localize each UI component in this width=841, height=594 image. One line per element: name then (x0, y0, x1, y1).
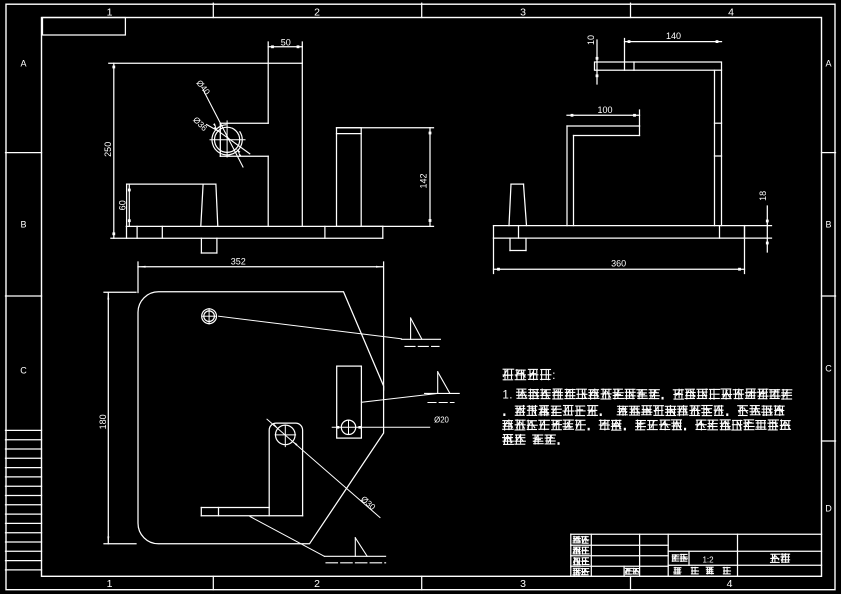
svg-text:2: 2 (314, 7, 320, 19)
svg-text:142: 142 (418, 173, 428, 188)
svg-text:3: 3 (520, 578, 526, 590)
svg-text:Ø20: Ø20 (434, 416, 449, 425)
svg-text:A: A (825, 59, 831, 69)
svg-text:10: 10 (586, 35, 596, 45)
svg-text:1:2: 1:2 (702, 555, 714, 564)
svg-text:180: 180 (98, 414, 108, 429)
svg-text:100: 100 (597, 105, 612, 115)
svg-text:A: A (20, 59, 26, 69)
svg-text:1: 1 (502, 388, 508, 401)
svg-text:60: 60 (118, 200, 128, 210)
svg-text:50: 50 (281, 37, 291, 47)
svg-text:1: 1 (107, 578, 113, 590)
svg-text:1: 1 (107, 7, 113, 19)
svg-text:4: 4 (728, 7, 734, 19)
svg-text:.: . (509, 388, 512, 401)
svg-text:140: 140 (666, 31, 681, 41)
svg-text:352: 352 (231, 256, 246, 266)
svg-text:3: 3 (520, 7, 526, 19)
svg-text::: : (552, 368, 555, 382)
svg-text:D: D (825, 504, 832, 514)
svg-text:B: B (20, 220, 26, 230)
svg-text:2: 2 (314, 578, 320, 590)
svg-text:250: 250 (103, 142, 113, 157)
svg-text:18: 18 (758, 191, 768, 201)
svg-text:C: C (825, 364, 832, 374)
svg-text:360: 360 (611, 259, 626, 269)
svg-text:B: B (825, 220, 831, 230)
svg-text:C: C (20, 366, 27, 376)
svg-text:4: 4 (727, 578, 733, 590)
